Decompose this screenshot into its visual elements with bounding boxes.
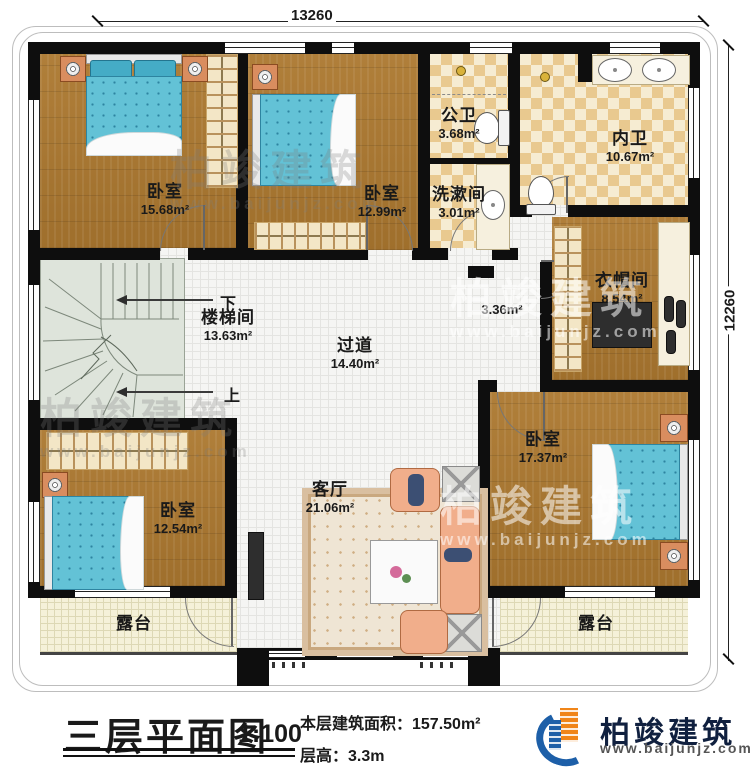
room-label-inner-bath: 内卫 10.67m²: [582, 129, 678, 165]
coffee-table: [370, 540, 438, 604]
room-label-terrace-right: 露台: [548, 614, 644, 634]
flower-decor: [390, 566, 402, 578]
light-fixture-icon: [456, 66, 466, 76]
right-dimension-line: [728, 45, 729, 661]
title-underline: [63, 755, 295, 757]
wall-bd2-bath: [418, 42, 430, 260]
brand-url: www.baijunjz.com: [600, 740, 750, 756]
plan-scale: 1:100: [238, 720, 302, 749]
wall-stub-sink: [578, 54, 592, 82]
room-label-bedroom-sw: 卧室 12.54m²: [130, 501, 226, 537]
brand-logo-building-icon: [549, 720, 561, 750]
floor-area-text: 本层建筑面积：157.50m²: [300, 710, 481, 734]
brand-logo: [536, 704, 592, 758]
closet: [254, 222, 366, 250]
nightstand: [660, 542, 688, 570]
wall-cloak-bottom: [545, 380, 700, 392]
plant-decor: [402, 574, 411, 583]
terrace-left-railing: [40, 652, 237, 655]
room-label-public-bath: 公卫 3.68m²: [411, 106, 507, 142]
window: [565, 586, 655, 598]
watermark: 柏竣建筑 www.baijunjz.com: [40, 398, 251, 462]
top-dimension-label: 13260: [288, 7, 336, 24]
window: [688, 88, 700, 178]
watermark: 柏竣建筑 www.baijunjz.com: [440, 486, 651, 550]
railing-posts: [420, 662, 454, 668]
top-dimension-line: [97, 21, 703, 22]
window: [470, 42, 512, 54]
wall-innerbath-bottom-b: [568, 205, 688, 217]
nightstand: [42, 472, 68, 498]
stairs-down-arrowhead: [116, 295, 127, 305]
nightstand: [182, 56, 208, 82]
room-label-bedroom-e: 卧室 17.37m²: [495, 430, 591, 466]
stairs-up-arrow: [125, 391, 213, 393]
sink-icon: [598, 58, 632, 82]
light-fixture-icon: [540, 72, 550, 82]
window: [269, 650, 305, 658]
room-label-terrace-left: 露台: [86, 614, 182, 634]
room-label-hallway: 过道 14.40m²: [305, 336, 405, 372]
floorplan-canvas: 13260 12260: [0, 0, 750, 771]
watermark: 柏竣建筑 www.baijunjz.com: [170, 150, 381, 214]
nightstand: [660, 414, 688, 442]
door-leaf: [492, 598, 494, 646]
floor-height-text: 层高：3.3m: [300, 742, 384, 766]
right-dimension-label: 12260: [721, 287, 738, 335]
room-label-stairwell: 楼梯间 13.63m²: [178, 308, 278, 344]
bed-sheet: [86, 132, 182, 156]
sink-icon: [642, 58, 676, 82]
window: [610, 42, 660, 54]
tv-icon: [248, 532, 264, 600]
window: [225, 42, 305, 54]
wall-h1: [28, 248, 160, 260]
title-underline: [63, 748, 295, 751]
toilet-tank: [526, 204, 556, 215]
decor-bottle: [676, 300, 686, 328]
window: [332, 42, 354, 54]
wall-top: [28, 42, 700, 54]
armchair: [400, 610, 448, 654]
room-label-washroom: 洗漱间 3.01m²: [411, 185, 507, 221]
terrace-right-railing: [500, 652, 688, 655]
brand-logo-building-icon: [560, 708, 578, 742]
door-leaf: [231, 598, 233, 646]
watermark: 柏竣建筑 www.baijunjz.com: [450, 278, 661, 342]
column: [237, 648, 269, 686]
person-figure: [408, 474, 424, 506]
room-label-living: 客厅 21.06m²: [282, 480, 378, 516]
window: [28, 285, 40, 400]
person-figure: [444, 548, 472, 562]
stairs-down-arrow: [125, 299, 213, 301]
door-leaf: [566, 177, 568, 213]
window: [28, 502, 40, 582]
window: [28, 100, 40, 230]
nightstand: [252, 64, 278, 90]
nightstand: [60, 56, 86, 82]
decor-bottle: [666, 330, 676, 354]
shower-partition: [432, 94, 506, 95]
side-table: [442, 614, 482, 652]
window: [688, 440, 700, 580]
railing-posts: [272, 662, 306, 668]
